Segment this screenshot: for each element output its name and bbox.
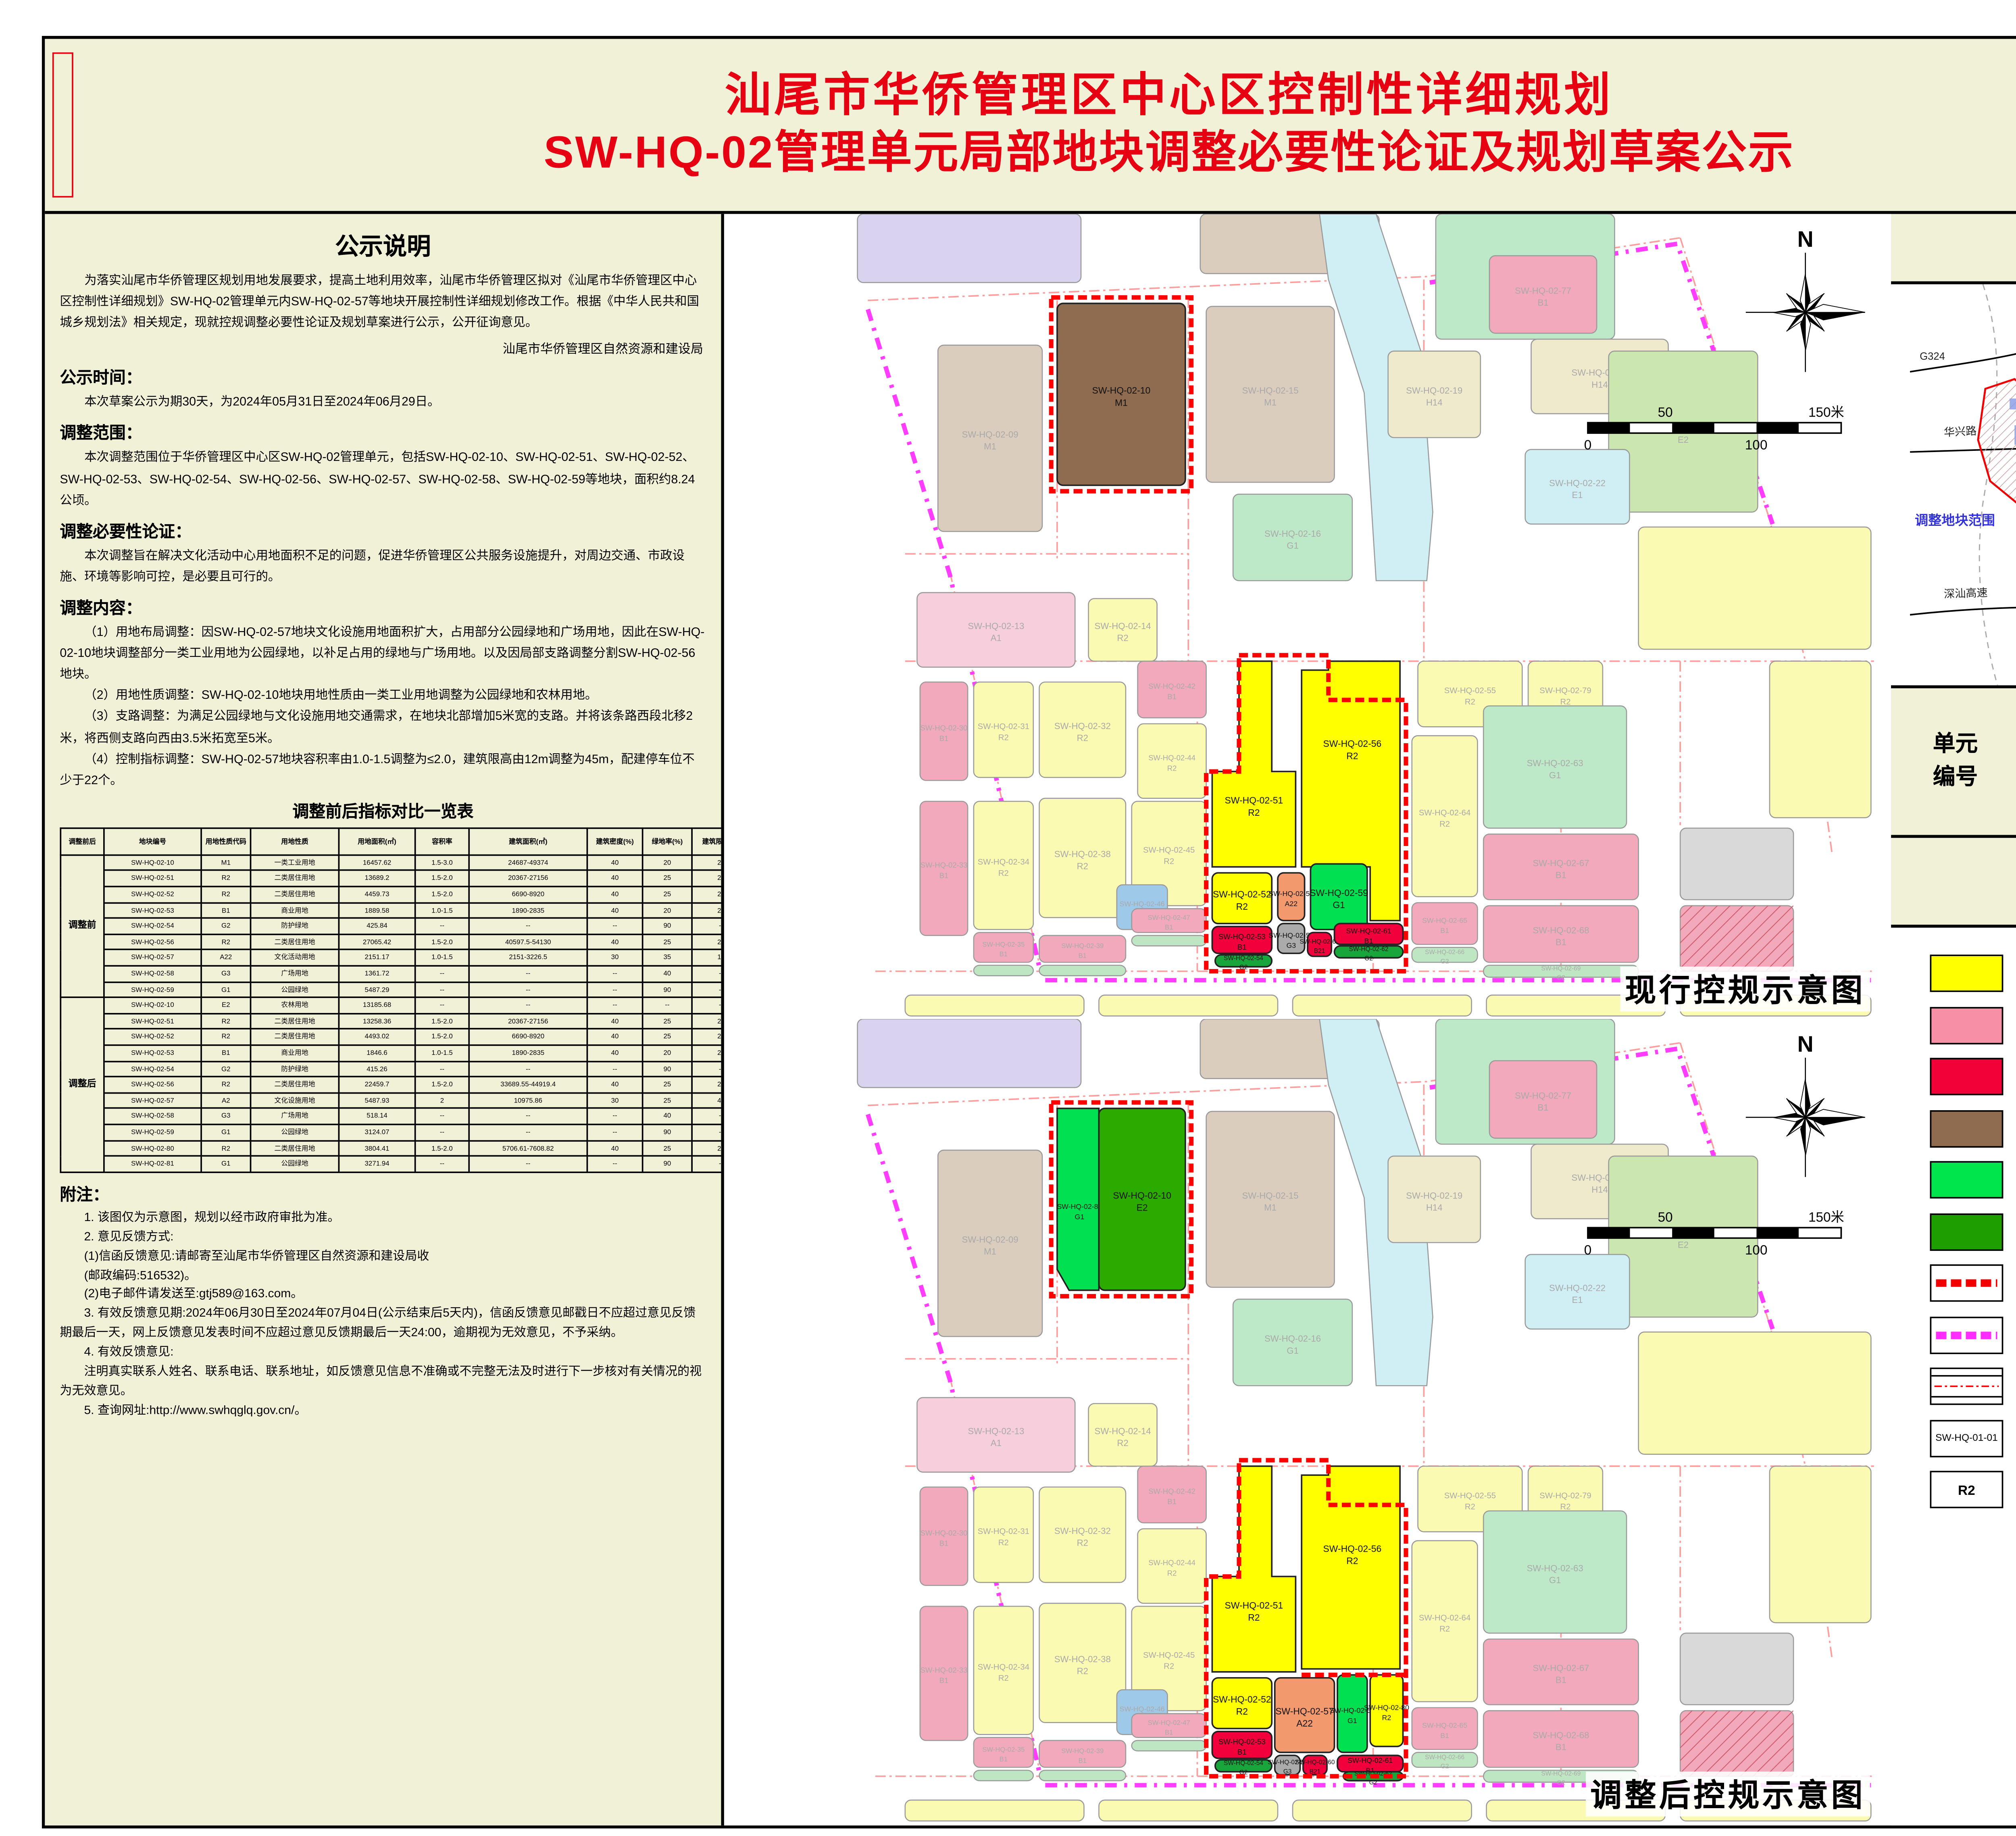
parcel [858,1019,1081,1088]
svg-text:G2: G2 [1441,1763,1449,1770]
svg-text:R2: R2 [1560,1503,1571,1511]
svg-text:B1: B1 [1165,923,1173,931]
table-cell: -- [469,1124,587,1140]
table-cell: -- [587,918,642,934]
parcel-SW-HQ-02-64: SW-HQ-02-64R2 [1412,736,1478,896]
svg-text:SW-HQ-02-38: SW-HQ-02-38 [1054,1654,1111,1664]
svg-text:SW-HQ-02-45: SW-HQ-02-45 [1143,1651,1195,1660]
legend-swatch [1930,1109,2004,1147]
note-line: (1)信函反馈意见:请邮寄至汕尾市华侨管理区自然资源和建设局收 [60,1247,706,1267]
table-cell: -- [415,1109,469,1124]
svg-text:B1: B1 [1237,1748,1247,1756]
table-cell: 商业用地 [251,1045,339,1061]
svg-text:R2: R2 [1164,1662,1174,1671]
table-cell: R2 [201,1029,250,1045]
parcel-SW-HQ-02-33: SW-HQ-02-33B1 [920,1606,968,1740]
table-cell: 二类居住用地 [251,1077,339,1092]
table-cell: SW-HQ-02-51 [104,1013,201,1029]
table-cell: 40 [587,1077,642,1092]
svg-text:SW-HQ-02-13: SW-HQ-02-13 [968,1426,1024,1436]
svg-text:SW-HQ-02-45: SW-HQ-02-45 [1143,846,1195,855]
svg-text:SW-HQ-02-81: SW-HQ-02-81 [1057,1202,1102,1211]
table-row: SW-HQ-02-59G1公园绿地3124.07------90--0-1 [60,1124,724,1140]
table-row: SW-HQ-02-52R2二类居住用地4459.731.5-2.06690-89… [60,887,724,902]
svg-text:R2: R2 [1077,733,1088,743]
table-cell: -- [587,1156,642,1172]
current-plan-caption: 现行控规示意图 [1620,967,1870,1011]
table-cell: -- [587,966,642,982]
svg-text:B1: B1 [939,1539,949,1548]
table-cell: -- [469,966,587,982]
parcel-SW-HQ-02-10: SW-HQ-02-10M1 [1057,303,1185,485]
table-cell: 40 [587,1029,642,1045]
parcel-SW-HQ-02-34: SW-HQ-02-34R2 [974,1606,1033,1734]
svg-text:B1: B1 [1556,1742,1566,1752]
map1-svg: SW-HQ-02-09M1SW-HQ-02-15M1SW-HQ-02-16G1S… [724,214,1891,1019]
parcel-SW-HQ-02-38: SW-HQ-02-38R2 [1039,798,1126,918]
table-cell: 1890-2835 [469,1045,587,1061]
table-cell: -- [587,982,642,997]
table-cell: 广场用地 [251,1109,339,1124]
svg-text:SW-HQ-02-47: SW-HQ-02-47 [1148,914,1190,921]
parcel-SW-HQ-02-16: SW-HQ-02-16G1 [1233,494,1352,581]
section-heading: 调整内容： [60,596,706,619]
svg-text:SW-HQ-02-79: SW-HQ-02-79 [1539,686,1591,695]
parcel-SW-HQ-02-42: SW-HQ-02-42B1 [1138,1466,1206,1523]
adjusted-plan-caption: 调整后控规示意图 [1586,1771,1870,1816]
poster: 汕尾市华侨管理区中心区控制性详细规划 SW-HQ-02管理单元局部地块调整必要性… [0,0,2016,1836]
table-cell: 25 [643,1140,692,1156]
table-cell: R2 [201,934,250,950]
table-cell: -- [469,1109,587,1124]
svg-text:B1: B1 [1000,950,1008,958]
svg-text:SW-HQ-02-53: SW-HQ-02-53 [1218,1737,1266,1746]
parcel-SW-HQ-02-14: SW-HQ-02-14R2 [1089,598,1157,661]
parcel-SW-HQ-02-22: SW-HQ-02-22E1 [1525,450,1630,524]
svg-text:SW-HQ-02-22: SW-HQ-02-22 [1549,1283,1606,1293]
parcel-SW-HQ-02-15: SW-HQ-02-15M1 [1206,306,1335,482]
col-header: 建筑密度(%) [587,828,642,855]
svg-text:SW-HQ-02-66: SW-HQ-02-66 [1425,1754,1464,1761]
table-cell: 防护绿地 [251,918,339,934]
table-cell: 25 [643,871,692,886]
locmap-label: 华兴路 [1943,424,1977,438]
parcel-code-symbol: SW-HQ-01-01 [1930,1419,2004,1457]
svg-text:SW-HQ-02-59: SW-HQ-02-59 [1310,888,1368,898]
svg-text:G1: G1 [1347,1717,1357,1725]
svg-text:H14: H14 [1426,398,1443,408]
parcel-SW-HQ-02-68: SW-HQ-02-68B1 [1483,906,1638,962]
table-cell: R2 [201,1077,250,1092]
table-cell: 2 [415,1093,469,1109]
svg-text:50: 50 [1658,405,1673,420]
svg-text:SW-HQ-02-68: SW-HQ-02-68 [1533,1730,1589,1740]
table-cell: 20367-27156 [469,1013,587,1029]
svg-text:SW-HQ-02-51: SW-HQ-02-51 [1225,1600,1283,1611]
table-cell: 16457.62 [339,855,415,871]
svg-text:100: 100 [1745,438,1768,453]
parcel [1770,661,1871,818]
parcel-SW-HQ-02-13: SW-HQ-02-13A1 [917,593,1075,667]
parcel-SW-HQ-02-80: SW-HQ-02-80R2 [1364,1675,1409,1746]
svg-text:R2: R2 [998,1538,1009,1547]
svg-text:SW-HQ-02-54: SW-HQ-02-54 [1224,1760,1263,1767]
svg-text:150米: 150米 [1808,405,1844,420]
svg-text:SW-HQ-02-67: SW-HQ-02-67 [1533,1663,1589,1673]
locmap-label: 调整地块范围 [1915,513,1995,528]
svg-text:SW-HQ-02-53: SW-HQ-02-53 [1218,932,1266,941]
table-cell: 24 [692,1077,724,1092]
svg-text:SW-HQ-02-69: SW-HQ-02-69 [1541,1770,1581,1777]
parcel-SW-HQ-02-09: SW-HQ-02-09M1 [938,345,1042,531]
parcel-SW-HQ-02-68: SW-HQ-02-68B1 [1483,1711,1638,1767]
svg-text:G2: G2 [1369,1780,1377,1786]
svg-text:SW-HQ-02-19: SW-HQ-02-19 [1406,386,1462,396]
section-heading: 公示时间： [60,366,706,390]
table-cell: 13185.68 [339,998,415,1013]
parcel [858,214,1081,283]
table-cell: 公园绿地 [251,1124,339,1140]
locmap-label: 深汕高速 [1944,586,1988,600]
table-cell: G2 [201,918,250,934]
svg-text:R2: R2 [1167,764,1177,772]
table-cell: 40597.5-54130 [469,934,587,950]
svg-text:SW-HQ-02-52: SW-HQ-02-52 [1213,889,1271,900]
table-cell: 1.5-2.0 [415,1029,469,1045]
table-cell: -- [587,1109,642,1124]
table-cell: -- [692,918,724,934]
table-cell: 25 [643,1013,692,1029]
svg-text:M1: M1 [984,442,996,452]
table-cell: 40 [587,855,642,871]
table-row: SW-HQ-02-81G1公园绿地3271.94------90--0-1 [60,1156,724,1172]
table-cell: SW-HQ-02-54 [104,1061,201,1077]
svg-text:B1: B1 [1556,870,1566,880]
indicator-table: 调整前后地块编号用地性质代码用地性质用地面积(㎡)容积率建筑面积(㎡)建筑密度(… [60,827,724,1173]
table-cell: G1 [201,1124,250,1140]
svg-text:R2: R2 [1167,1569,1177,1578]
table-cell: 24 [692,855,724,871]
table-cell: 40 [587,1013,642,1029]
table-cell: 文化活动用地 [251,950,339,966]
legend-swatch [1930,954,2004,992]
section-paragraph: （4）控制指标调整：SW-HQ-02-57地块容积率由1.0-1.5调整为≤2.… [60,749,706,792]
table-cell: 1.5-2.0 [415,1140,469,1156]
svg-text:B1: B1 [1079,952,1087,959]
planned-road-symbol [1930,1367,2004,1405]
parcel [1099,1800,1278,1821]
table-cell: 二类居住用地 [251,871,339,886]
table-cell: 10975.86 [469,1093,587,1109]
table-cell: 4459.73 [339,887,415,902]
svg-text:A1: A1 [991,633,1002,643]
svg-text:R2: R2 [1346,1556,1358,1566]
legend-swatch [1930,1213,2004,1250]
table-cell: A22 [201,950,250,966]
svg-text:SW-HQ-02-44: SW-HQ-02-44 [1148,1559,1195,1567]
note-line: 3. 有效反馈意见期:2024年06月30日至2024年07月04日(公示结束后… [60,1305,706,1344]
parcel [1293,995,1472,1016]
legend-item: 农林用地 [1930,1213,2016,1250]
svg-text:SW-HQ-02-57: SW-HQ-02-57 [1275,1706,1334,1716]
table-cell: 24 [692,1029,724,1045]
table-row: SW-HQ-02-53B1商业用地1846.61.0-1.51890-28354… [60,1045,724,1061]
table-cell: 25 [643,934,692,950]
table-row: SW-HQ-02-57A22文化活动用地2151.171.0-1.52151-3… [60,950,724,966]
legend-item: 规划道路 [1930,1367,2016,1405]
table-cell: G3 [201,1109,250,1124]
table-cell: 3124.07 [339,1124,415,1140]
table-cell: SW-HQ-02-52 [104,1029,201,1045]
table-cell: 商业用地 [251,902,339,918]
parcel-SW-HQ-02-35: SW-HQ-02-35B1 [974,932,1033,962]
col-header: 建筑限高(m) [692,828,724,855]
parcel-SW-HQ-02-59: SW-HQ-02-59G1 [1310,864,1368,929]
svg-text:SW-HQ-02-09: SW-HQ-02-09 [962,429,1018,440]
table-cell: 1.5-3.0 [415,855,469,871]
table-cell: 2151.17 [339,950,415,966]
table-cell: 1.5-2.0 [415,1077,469,1092]
parcel [1293,1800,1472,1821]
svg-text:B1: B1 [1167,692,1177,701]
parcel-SW-HQ-02-39: SW-HQ-02-39B1 [1039,936,1126,963]
table-cell: 40 [643,966,692,982]
svg-text:SW-HQ-02-44: SW-HQ-02-44 [1148,753,1195,762]
table-row: 调整后SW-HQ-02-10E2农林用地13185.68------------ [60,998,724,1013]
svg-text:R2: R2 [1077,1538,1088,1548]
table-cell: SW-HQ-02-57 [104,950,201,966]
table-cell: -- [692,1124,724,1140]
current-plan-map: SW-HQ-02-09M1SW-HQ-02-15M1SW-HQ-02-16G1S… [724,214,1891,1019]
notes-section: 附注： 1. 该图仅为示意图，规划以经市政府审批为准。2. 意见反馈方式:(1)… [60,1182,706,1421]
table-cell: 文化设施用地 [251,1093,339,1109]
table-cell: G3 [201,966,250,982]
table-cell: SW-HQ-02-56 [104,1077,201,1092]
table-cell: SW-HQ-02-80 [104,1140,201,1156]
svg-text:SW-HQ-02-33: SW-HQ-02-33 [921,1666,968,1674]
svg-text:SW-HQ-02-60: SW-HQ-02-60 [1295,1759,1335,1766]
table-cell: -- [469,1156,587,1172]
table-cell: 1.0-1.5 [415,902,469,918]
col-header: 绿地率(%) [643,828,692,855]
table-cell: 415.26 [339,1061,415,1077]
banner-left-mark [52,52,73,198]
svg-text:B1: B1 [1556,937,1566,947]
unit-number-row: 单元编号 SW-HQ-02 [1891,688,2016,838]
col-header: 调整前后 [60,828,104,855]
parcel-SW-HQ-02-57: SW-HQ-02-57A22 [1275,1678,1335,1753]
svg-text:SW-HQ-02-38: SW-HQ-02-38 [1054,849,1111,859]
svg-text:SW-HQ-02-63: SW-HQ-02-63 [1527,758,1583,768]
notice-intro: 为落实汕尾市华侨管理区规划用地发展要求，提高土地利用效率，汕尾市华侨管理区拟对《… [60,271,706,334]
adjusted-plan-map: SW-HQ-02-09M1SW-HQ-02-15M1SW-HQ-02-16G1S… [724,1019,1891,1824]
svg-text:E2: E2 [1678,1240,1689,1250]
col-header: 用地面积(㎡) [339,828,415,855]
parcel [1039,965,1126,976]
table-cell: SW-HQ-02-58 [104,1109,201,1124]
title-banner: 汕尾市华侨管理区中心区控制性详细规划 SW-HQ-02管理单元局部地块调整必要性… [45,39,2016,214]
table-cell: -- [415,966,469,982]
parcel-SW-HQ-02-52: SW-HQ-02-52R2 [1212,873,1272,924]
section-paragraph: （1）用地布局调整：因SW-HQ-02-57地块文化设施用地面积扩大，占用部分公… [60,623,706,686]
table-cell: 1.0-1.5 [415,1045,469,1061]
table-cell: 40 [587,934,642,950]
table-cell: 5487.29 [339,982,415,997]
table-cell: 农林用地 [251,998,339,1013]
table-cell: 2151-3226.5 [469,950,587,966]
table-cell: 13689.2 [339,871,415,886]
svg-text:150米: 150米 [1808,1210,1844,1225]
svg-text:B1: B1 [1440,927,1449,935]
section-paragraph: （2）用地性质调整：SW-HQ-02-10地块用地性质由一类工业用地调整为公园绿… [60,686,706,707]
svg-text:SW-HQ-02-33: SW-HQ-02-33 [921,861,968,869]
parcel [1680,828,1793,900]
svg-text:SW-HQ-02-10: SW-HQ-02-10 [1092,385,1151,396]
table-cell: SW-HQ-02-10 [104,855,201,871]
svg-text:B1: B1 [1538,1102,1549,1113]
table-cell: 二类居住用地 [251,1013,339,1029]
table-cell: 13258.36 [339,1013,415,1029]
parcel-SW-HQ-02-67: SW-HQ-02-67B1 [1483,834,1638,900]
svg-text:N: N [1797,227,1814,252]
parcel-SW-HQ-02-31: SW-HQ-02-31R2 [974,1487,1033,1583]
legend-swatch [1930,1161,2004,1198]
svg-text:R2: R2 [1465,1503,1475,1511]
section-heading: 调整必要性论证： [60,519,706,543]
legend-item: 商业用地 [1930,1058,2016,1095]
table-cell: 30 [587,950,642,966]
table-cell: M1 [201,855,250,871]
legend-item: R2地块性质 [1930,1471,2016,1508]
svg-text:R2: R2 [1248,1612,1260,1623]
svg-text:E1: E1 [1572,490,1583,500]
table-cell: SW-HQ-02-81 [104,1156,201,1172]
table-cell: 518.14 [339,1109,415,1124]
table-cell: -- [692,1109,724,1124]
table-cell: -- [692,966,724,982]
parcel-SW-HQ-02-33: SW-HQ-02-33B1 [920,801,968,936]
svg-text:SW-HQ-02-30: SW-HQ-02-30 [921,1529,968,1537]
parcel-SW-HQ-02-30: SW-HQ-02-30B1 [920,1487,968,1586]
note-line: 2. 意见反馈方式: [60,1228,706,1247]
table-cell: R2 [201,1140,250,1156]
parcel-SW-HQ-02-16: SW-HQ-02-16G1 [1233,1299,1352,1386]
svg-text:G2: G2 [1557,975,1565,982]
table-cell: 27065.42 [339,934,415,950]
table-cell: 90 [643,1156,692,1172]
parcel-SW-HQ-02-65: SW-HQ-02-65B1 [1412,903,1478,945]
svg-text:SW-HQ-02-65: SW-HQ-02-65 [1422,1721,1467,1730]
legend-item: 规划管理单元边界 [1930,1316,2016,1353]
location-map: G324华兴路潮惠高速侨惠公路县道138深汕高速华侨公路SW-HQ-02单元调整… [1891,284,2016,688]
svg-text:SW-HQ-02-46: SW-HQ-02-46 [1120,900,1165,908]
parcel [1132,1740,1206,1751]
parcel [1680,906,1793,971]
svg-text:B1: B1 [1000,1755,1008,1763]
legend-swatch [1930,1058,2004,1095]
notes-heading: 附注： [60,1182,706,1205]
svg-text:SW-HQ-02-30: SW-HQ-02-30 [921,724,968,732]
table-row: SW-HQ-02-54G2防护绿地425.84------90---- [60,918,724,934]
svg-text:H14: H14 [1591,1185,1608,1195]
svg-text:SW-HQ-02-56: SW-HQ-02-56 [1323,738,1382,749]
svg-text:SW-HQ-02-69: SW-HQ-02-69 [1541,965,1581,972]
col-header: 用地性质代码 [201,828,250,855]
svg-text:SW-HQ-02-42: SW-HQ-02-42 [1148,1487,1195,1495]
parcel-SW-HQ-02-32: SW-HQ-02-32R2 [1039,1487,1126,1583]
svg-text:SW-HQ-02-77: SW-HQ-02-77 [1515,1091,1571,1101]
svg-text:SW-HQ-02-55: SW-HQ-02-55 [1444,686,1496,695]
note-line: (2)电子邮件请发送至:gtj589@163.com。 [60,1286,706,1305]
poster-frame: 汕尾市华侨管理区中心区控制性详细规划 SW-HQ-02管理单元局部地块调整必要性… [42,36,2016,1828]
section-paragraph: 本次调整旨在解决文化活动中心用地面积不足的问题，促进华侨管理区公共服务设施提升，… [60,546,706,588]
svg-text:G1: G1 [1549,1575,1561,1585]
table-cell: SW-HQ-02-57 [104,1093,201,1109]
group-cell: 调整后 [60,998,104,1172]
svg-text:SW-HQ-02-77: SW-HQ-02-77 [1515,286,1571,296]
svg-text:50: 50 [1658,1210,1673,1225]
table-cell: SW-HQ-02-52 [104,887,201,902]
svg-text:SW-HQ-02-15: SW-HQ-02-15 [1242,386,1299,396]
table-cell: 1846.6 [339,1045,415,1061]
svg-text:SW-HQ-02-60: SW-HQ-02-60 [1300,938,1339,945]
table-cell: 3804.41 [339,1140,415,1156]
table-row: SW-HQ-02-58G3广场用地1361.72------40--0-0 [60,966,724,982]
table-cell: -- [692,1061,724,1077]
parcel-SW-HQ-02-53: SW-HQ-02-53B1 [1212,927,1272,954]
table-cell: -- [415,918,469,934]
unit-boundary-symbol [1930,1316,2004,1353]
table-cell: -- [415,998,469,1013]
table-cell: 25 [643,1093,692,1109]
parcel-SW-HQ-02-39: SW-HQ-02-39B1 [1039,1740,1126,1767]
svg-text:SW-HQ-02-32: SW-HQ-02-32 [1054,721,1111,731]
svg-text:B1: B1 [1556,1675,1566,1685]
table-cell: -- [469,982,587,997]
parcel [974,1770,1033,1781]
svg-text:SW-HQ-02-67: SW-HQ-02-67 [1533,858,1589,868]
svg-text:R2: R2 [1346,751,1358,761]
svg-text:E2: E2 [1678,435,1689,445]
table-cell: -- [692,998,724,1013]
svg-text:SW-HQ-02-14: SW-HQ-02-14 [1095,1426,1151,1436]
table-row: SW-HQ-02-58G3广场用地518.14------40--0-0 [60,1109,724,1124]
parcel-SW-HQ-02-63: SW-HQ-02-63G1 [1483,1511,1627,1633]
table-cell: 5706.61-7608.82 [469,1140,587,1156]
table-cell: 广场用地 [251,966,339,982]
table-cell: R2 [201,887,250,902]
svg-text:H14: H14 [1591,379,1608,390]
legend-title: 图 例 [1891,838,2016,928]
svg-text:SW-HQ-02-64: SW-HQ-02-64 [1419,1613,1470,1622]
table-cell: SW-HQ-02-58 [104,966,201,982]
svg-text:G1: G1 [1287,541,1299,551]
parcel-nature-symbol: R2 [1930,1471,2004,1508]
svg-text:A1: A1 [991,1438,1002,1448]
table-cell: 24 [692,1045,724,1061]
svg-text:SW-HQ-02-35: SW-HQ-02-35 [982,941,1025,948]
table-cell: -- [469,998,587,1013]
svg-text:SW-HQ-02-80: SW-HQ-02-80 [1364,1703,1409,1711]
svg-text:SW-HQ-02-66: SW-HQ-02-66 [1425,949,1464,956]
parcel-SW-HQ-02-38: SW-HQ-02-38R2 [1039,1603,1126,1723]
svg-text:SW-HQ-02-62: SW-HQ-02-62 [1349,946,1389,953]
note-line: 注明真实联系人姓名、联系电话、联系地址，如反馈意见信息不准确或不完整无法及时进行… [60,1363,706,1402]
table-row: SW-HQ-02-57A2文化设施用地5487.93210975.8630254… [60,1093,724,1109]
svg-text:G1: G1 [1549,770,1561,780]
svg-text:0: 0 [1584,1243,1592,1258]
table-cell: 6690-8920 [469,1029,587,1045]
